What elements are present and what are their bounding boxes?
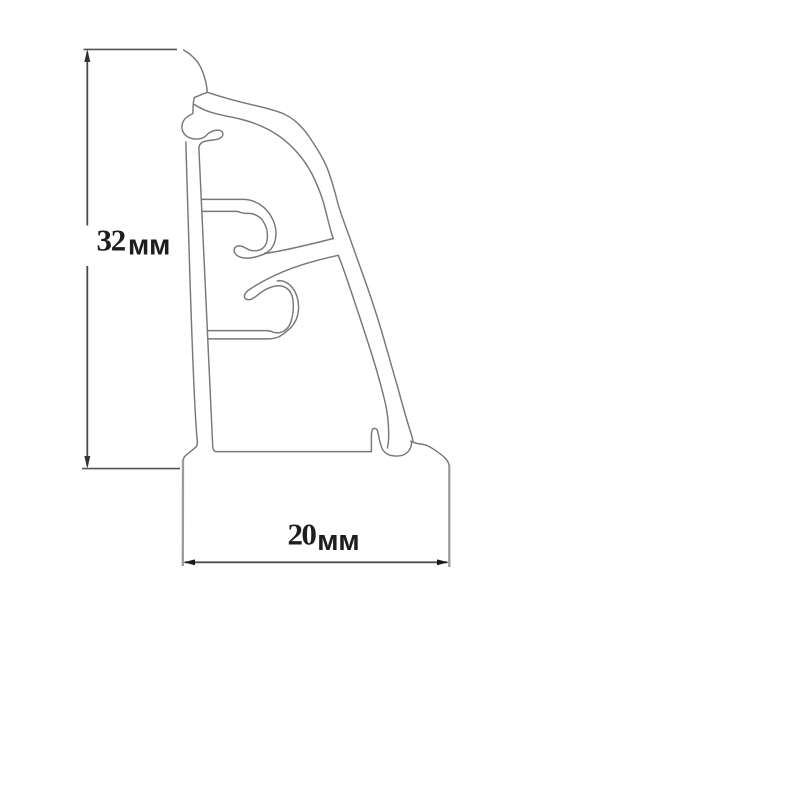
svg-text:20: 20 bbox=[288, 517, 317, 552]
svg-text:мм: мм bbox=[317, 525, 359, 557]
svg-text:32: 32 bbox=[97, 222, 126, 257]
svg-text:мм: мм bbox=[128, 229, 170, 261]
